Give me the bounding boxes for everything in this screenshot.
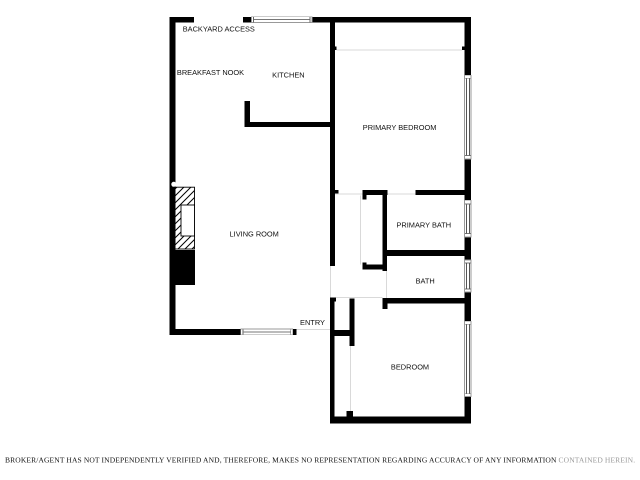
svg-text:LIVING ROOM: LIVING ROOM bbox=[230, 229, 279, 238]
svg-text:BEDROOM: BEDROOM bbox=[391, 363, 429, 372]
svg-text:ENTRY: ENTRY bbox=[300, 318, 325, 327]
svg-text:PRIMARY BATH: PRIMARY BATH bbox=[396, 221, 451, 230]
svg-text:BREAKFAST NOOK: BREAKFAST NOOK bbox=[177, 68, 244, 77]
svg-text:BATH: BATH bbox=[416, 277, 435, 286]
svg-text:KITCHEN: KITCHEN bbox=[272, 71, 304, 80]
svg-text:BROKER/AGENT HAS NOT INDEPENDE: BROKER/AGENT HAS NOT INDEPENDENTLY VERIF… bbox=[5, 456, 635, 465]
svg-text:PRIMARY BEDROOM: PRIMARY BEDROOM bbox=[363, 123, 437, 132]
svg-text:BACKYARD ACCESS: BACKYARD ACCESS bbox=[183, 24, 255, 33]
